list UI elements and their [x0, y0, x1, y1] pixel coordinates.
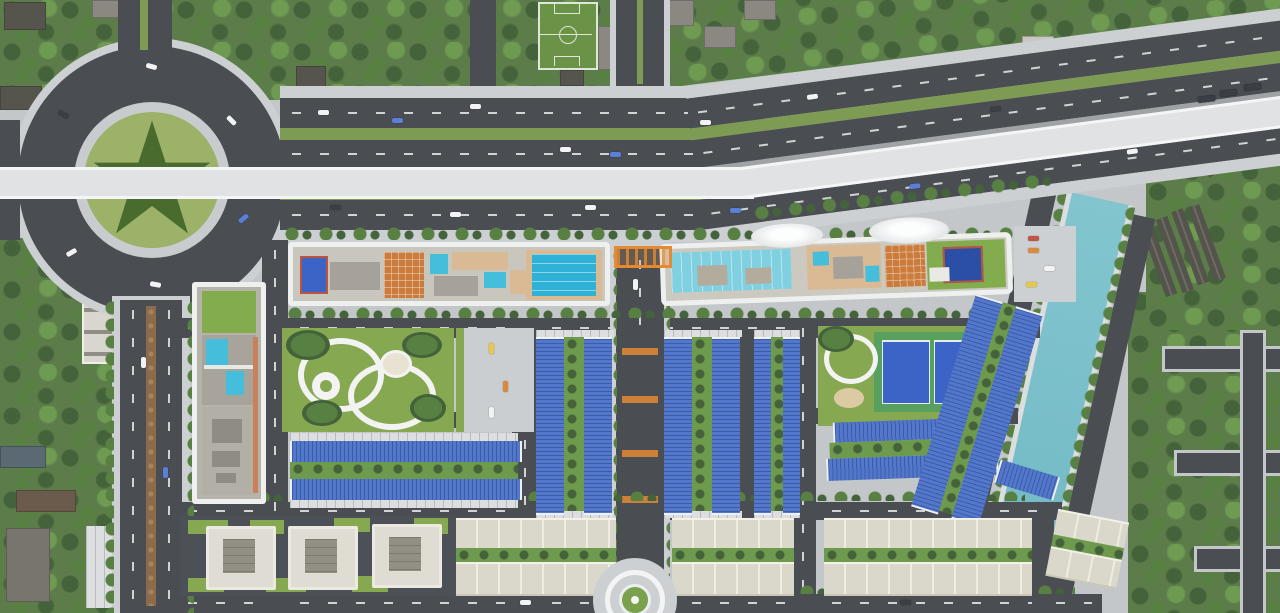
existing-building — [296, 66, 326, 88]
tree-cluster — [302, 400, 342, 426]
avenue-trees — [102, 300, 114, 613]
car — [141, 357, 146, 368]
rowhouse-band — [824, 518, 1032, 552]
rooftop-pool — [430, 254, 448, 274]
car — [900, 600, 911, 605]
mini-roundabout-center — [631, 596, 639, 604]
car — [330, 205, 341, 210]
car — [318, 110, 329, 115]
plaza-green-edge — [456, 328, 464, 432]
football-field — [538, 2, 598, 70]
car — [730, 208, 741, 213]
orange-court — [384, 252, 424, 298]
field-penalty-box — [554, 4, 580, 14]
lane-line — [292, 153, 756, 155]
east-road — [1194, 546, 1280, 572]
main-pool — [532, 254, 596, 296]
car — [700, 120, 711, 125]
tree-cluster — [286, 330, 330, 360]
existing-building — [744, 0, 776, 20]
building-pad — [206, 526, 276, 590]
rooftop-block — [833, 256, 864, 279]
shophouse-row — [290, 479, 522, 500]
crosswalk — [622, 450, 658, 457]
rooftop-unit — [216, 473, 236, 483]
avenue-median-planting — [146, 306, 156, 606]
existing-building — [0, 446, 46, 468]
podium-b-parking — [1014, 226, 1076, 302]
lane-line — [168, 310, 170, 605]
backyard-green — [564, 337, 584, 511]
car — [1028, 248, 1039, 253]
tower-roof-lawn — [202, 291, 256, 333]
shophouse-row — [664, 337, 692, 515]
backyard-green — [290, 462, 518, 479]
crosswalk — [622, 348, 658, 355]
rooftop-pool-long — [671, 249, 792, 293]
shophouse-row — [290, 441, 522, 462]
park-west — [282, 328, 454, 432]
tree-cluster — [410, 394, 446, 422]
rowhouse-band — [456, 518, 616, 552]
car — [520, 600, 531, 605]
pad-core — [389, 537, 421, 571]
tree-cluster — [402, 332, 442, 358]
rooftop-block — [745, 267, 772, 284]
garage-strip — [290, 433, 518, 441]
rowhouse-band — [672, 562, 794, 596]
car — [585, 205, 596, 210]
garage-strip — [754, 330, 800, 337]
entrance-gate — [614, 246, 672, 268]
backyard-green — [771, 337, 783, 511]
tower-pool — [226, 371, 244, 395]
elevated-expressway-west — [0, 167, 754, 199]
garage-strip — [664, 330, 742, 337]
garage-strip — [536, 330, 614, 337]
car — [1026, 282, 1037, 287]
podium-b-deck — [659, 232, 1013, 306]
existing-building — [560, 70, 584, 86]
existing-building — [92, 0, 120, 18]
field-penalty-box — [554, 56, 580, 66]
shophouse-row — [754, 337, 771, 515]
car — [1044, 266, 1055, 271]
car — [163, 467, 168, 478]
shophouse-row — [536, 337, 564, 515]
shophouse-row — [584, 337, 612, 515]
construction-lot — [180, 516, 456, 596]
field-center-circle — [559, 26, 577, 44]
backyard-green — [824, 548, 1032, 562]
tower-pool — [206, 339, 228, 367]
cross-road-median — [637, 0, 643, 84]
shophouse-row — [712, 337, 740, 515]
rowhouse-band-canal-group — [1043, 509, 1139, 603]
car — [392, 118, 403, 123]
residential-tower — [192, 282, 266, 504]
rooftop-block — [330, 262, 380, 290]
rooftop-unit — [212, 419, 242, 443]
rowhouse-band — [456, 562, 616, 596]
east-road-vertical — [1240, 330, 1266, 613]
car — [489, 343, 494, 354]
rooftop-unit — [212, 451, 240, 467]
tower-walkway — [204, 365, 254, 369]
orange-court — [884, 244, 925, 287]
rooftop-pool — [484, 272, 506, 288]
podium-a — [288, 242, 610, 306]
backyard-green — [692, 337, 712, 511]
sand-play-area — [834, 388, 864, 408]
avenue-north-median — [140, 0, 148, 50]
backyard-green — [672, 548, 794, 562]
existing-building — [4, 2, 46, 30]
rowhouse-band — [672, 518, 794, 552]
car — [503, 381, 508, 392]
basketball-court — [300, 256, 328, 294]
car — [489, 407, 494, 418]
shophouse-row — [783, 337, 800, 515]
car — [470, 104, 481, 109]
car — [450, 212, 461, 217]
rooftop-deck — [452, 252, 508, 270]
existing-building — [704, 26, 736, 48]
podium-b — [655, 216, 1020, 311]
existing-building — [16, 490, 76, 512]
building-pad — [288, 526, 358, 590]
car — [633, 279, 638, 290]
lane-line — [292, 214, 756, 216]
pad-core — [305, 539, 337, 573]
backyard-green — [456, 548, 616, 562]
existing-building — [6, 528, 50, 602]
crosswalk — [622, 396, 658, 403]
plaza-parking — [456, 328, 534, 432]
rooftop-block — [697, 265, 728, 286]
rooftop-block — [434, 276, 478, 296]
pad-core — [223, 539, 255, 573]
rowhouse-band — [824, 562, 1032, 596]
rooftop-pool — [865, 266, 880, 282]
car — [560, 147, 571, 152]
tree-cluster — [818, 326, 854, 352]
tennis-court — [882, 340, 930, 404]
street-trees — [285, 306, 1025, 318]
masterplan-aerial-view — [0, 0, 1280, 613]
building-pad — [372, 524, 442, 588]
tower-terracotta-strip — [253, 337, 258, 493]
north-road — [470, 0, 496, 88]
lane-line — [292, 112, 756, 114]
rooftop-block — [929, 267, 949, 282]
garage-strip — [290, 500, 518, 508]
park-lawn-pad — [320, 380, 332, 392]
car — [610, 152, 621, 157]
lane-line — [132, 310, 134, 605]
lane-line — [802, 328, 804, 606]
rooftop-pool — [813, 251, 829, 266]
lane-line — [639, 260, 641, 340]
car — [1028, 236, 1039, 241]
